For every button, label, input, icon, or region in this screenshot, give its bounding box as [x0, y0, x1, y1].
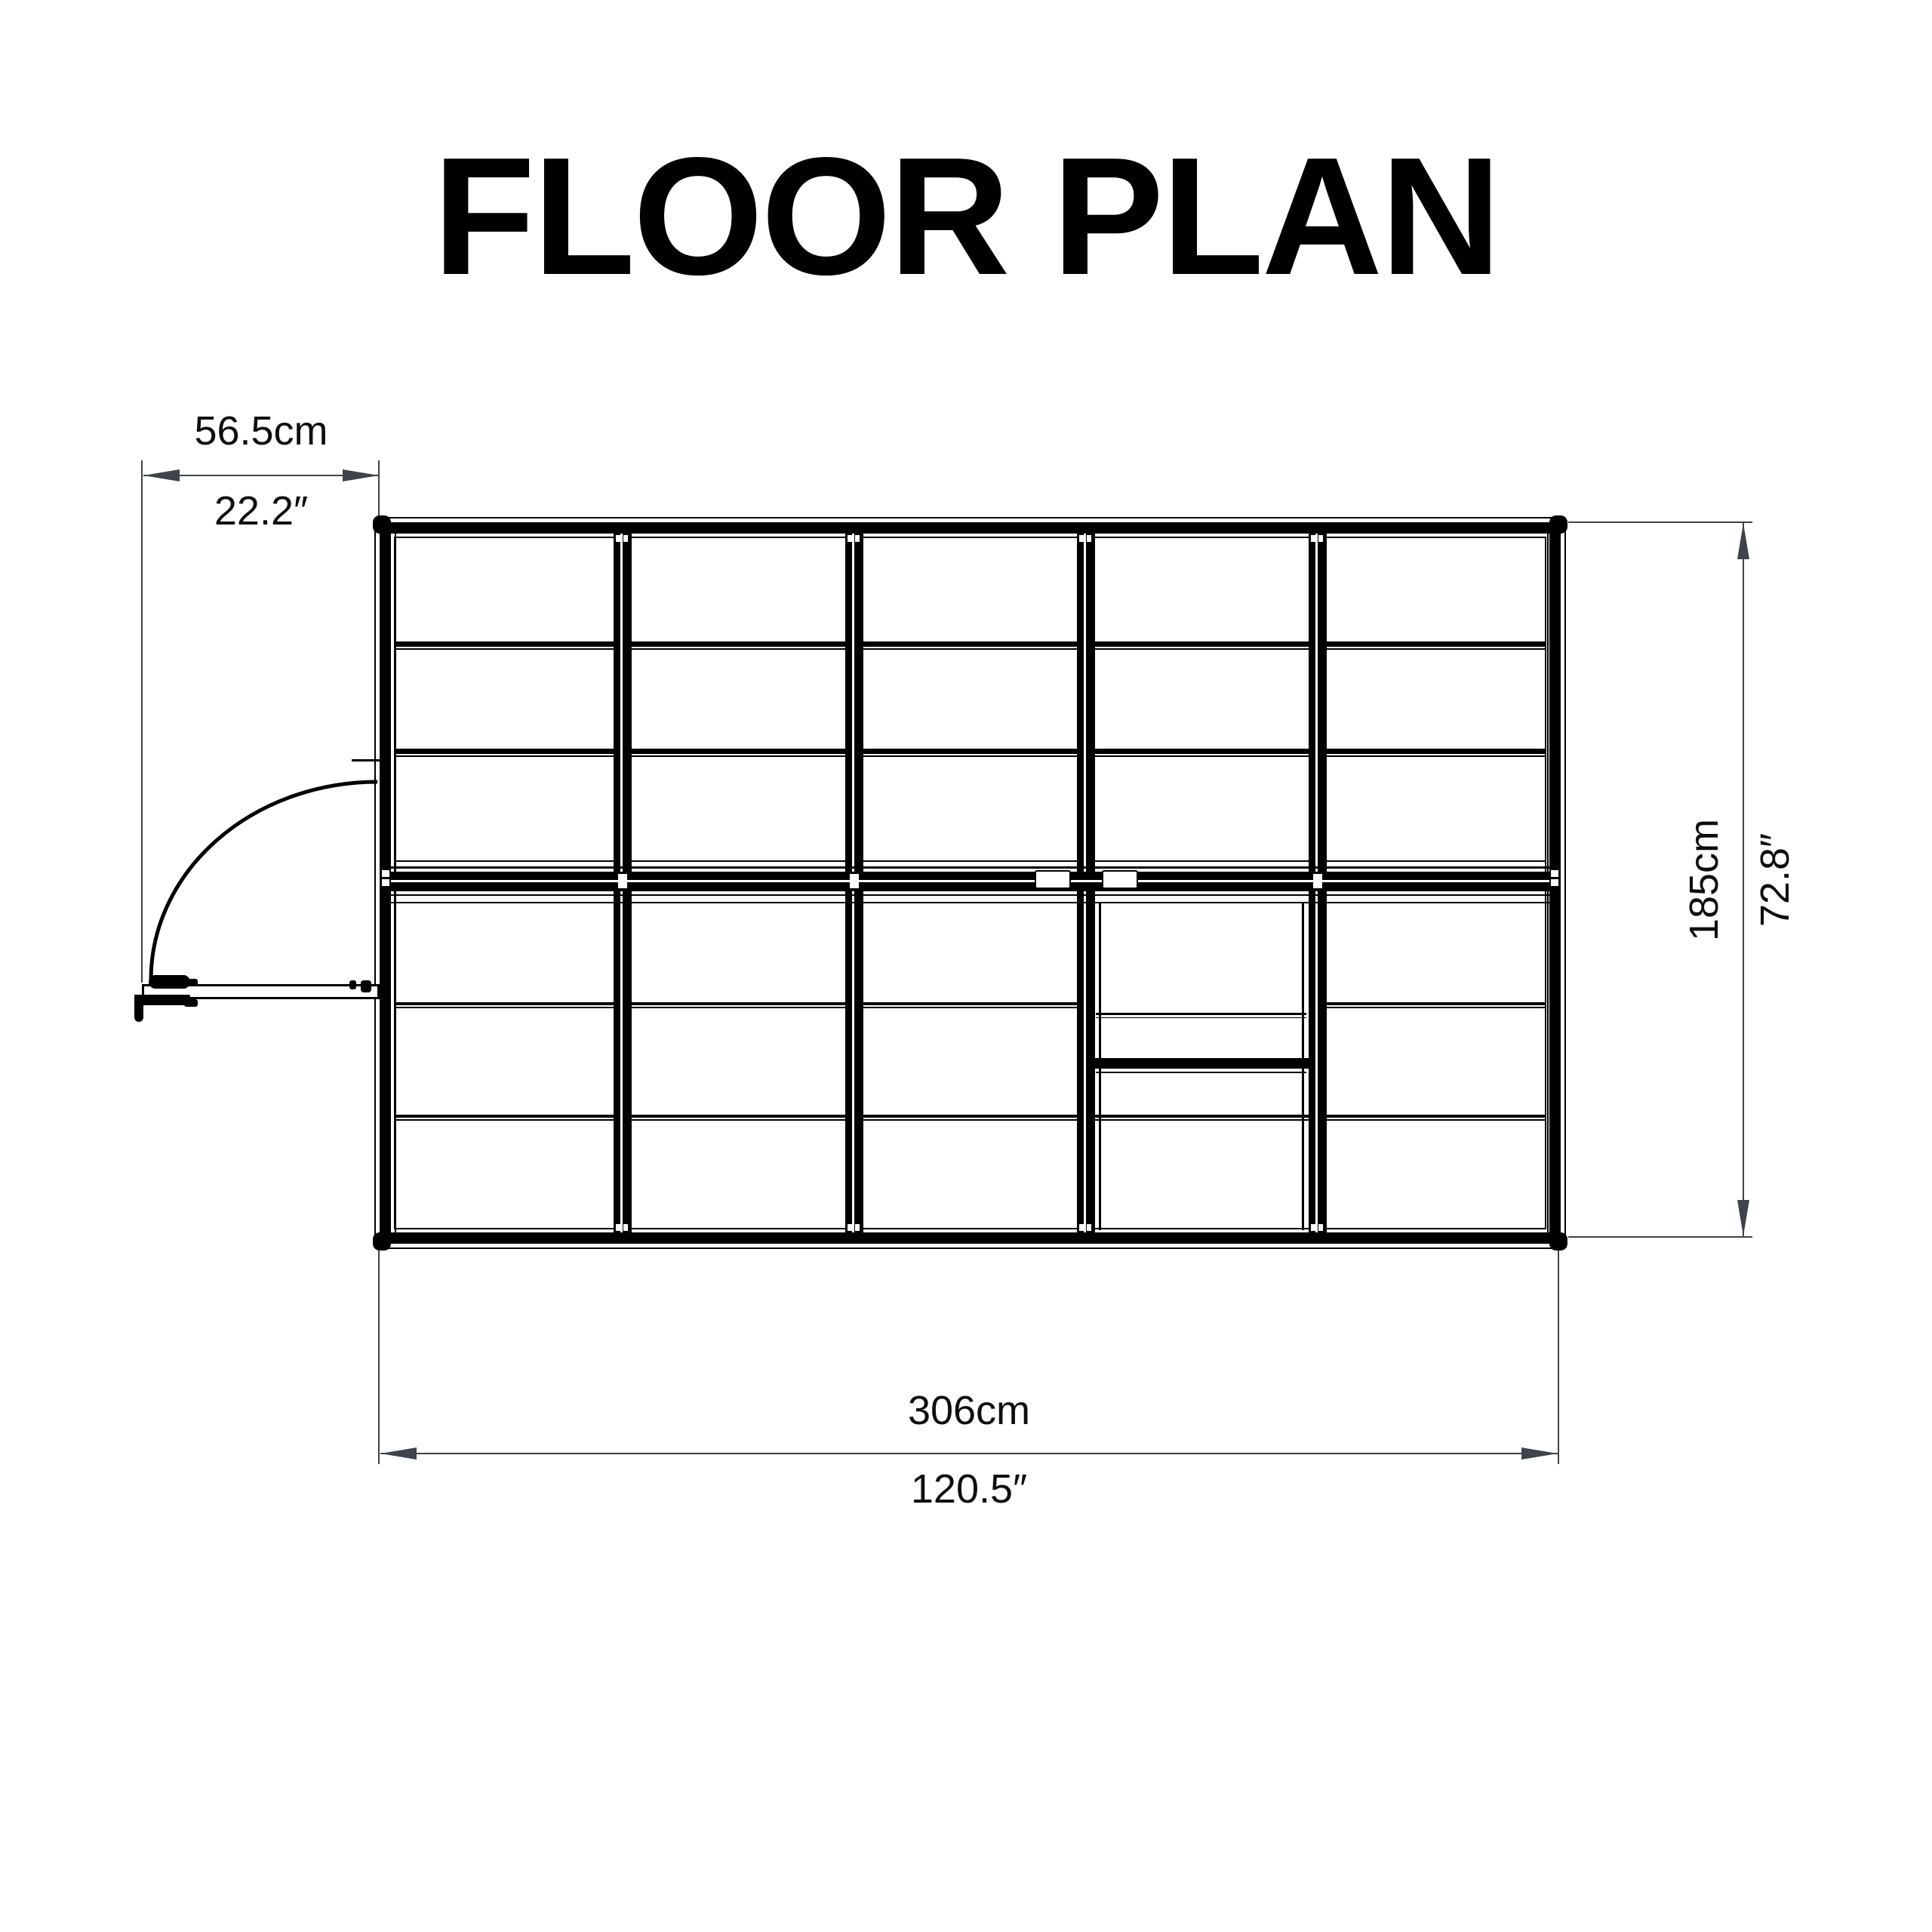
door-handle-pin [184, 999, 198, 1007]
door-width-imperial-label: 22.2″ [110, 488, 412, 534]
arrowhead-right [343, 469, 379, 481]
arrowhead-down [1737, 1200, 1749, 1236]
door-handle-hook [134, 995, 143, 1022]
corner-post-bottom-left [373, 1232, 391, 1251]
greenhouse-plan [380, 522, 1561, 1244]
beam-wall-joint [1551, 879, 1558, 886]
arrowhead-left [380, 1447, 417, 1460]
extension-line-depth-bottom [1568, 1236, 1752, 1238]
page-title: FLOOR PLAN [0, 133, 1932, 300]
frame-band [380, 522, 1561, 1244]
door-hinge-pin [184, 979, 198, 986]
corner-post-bottom-right [1549, 1232, 1567, 1251]
beam-wall-joint [1551, 870, 1558, 877]
door-width-metric-label: 56.5cm [110, 408, 412, 454]
vent-handle-slot [1102, 870, 1138, 889]
extension-line-width-right [1558, 1247, 1559, 1464]
beam-wall-joint [382, 870, 389, 877]
arrowhead-right [1521, 1447, 1558, 1460]
beam-mullion-joint [1313, 882, 1322, 888]
arrowhead-left [143, 469, 180, 481]
beam-wall-joint [382, 879, 389, 886]
width-metric-label: 306cm [818, 1387, 1120, 1434]
depth-imperial-label: 72.8″ [1752, 744, 1798, 1016]
arrowhead-up [1737, 523, 1749, 559]
beam-mullion-joint [850, 874, 859, 880]
beam-mullion-joint [618, 874, 627, 880]
door-jamb-tick [352, 759, 380, 761]
door-latch-dot [361, 980, 371, 992]
door-swing-arc [136, 770, 385, 989]
extension-line-width-left [378, 1247, 380, 1464]
vent-handle-slot [1035, 870, 1071, 889]
beam-mullion-joint [618, 882, 627, 888]
floor-plan-drawing: FLOOR PLAN [0, 0, 1932, 1932]
beam-mullion-joint [1313, 874, 1322, 880]
corner-post-top-left [373, 515, 391, 534]
dimension-line-depth [1743, 523, 1744, 1236]
corner-post-top-right [1549, 515, 1567, 534]
width-imperial-label: 120.5″ [818, 1466, 1120, 1512]
extension-line-depth-top [1568, 521, 1752, 523]
dimension-line-width [380, 1453, 1558, 1454]
depth-metric-label: 185cm [1681, 744, 1727, 1016]
door-latch-dot [349, 980, 356, 989]
beam-mullion-joint [850, 882, 859, 888]
